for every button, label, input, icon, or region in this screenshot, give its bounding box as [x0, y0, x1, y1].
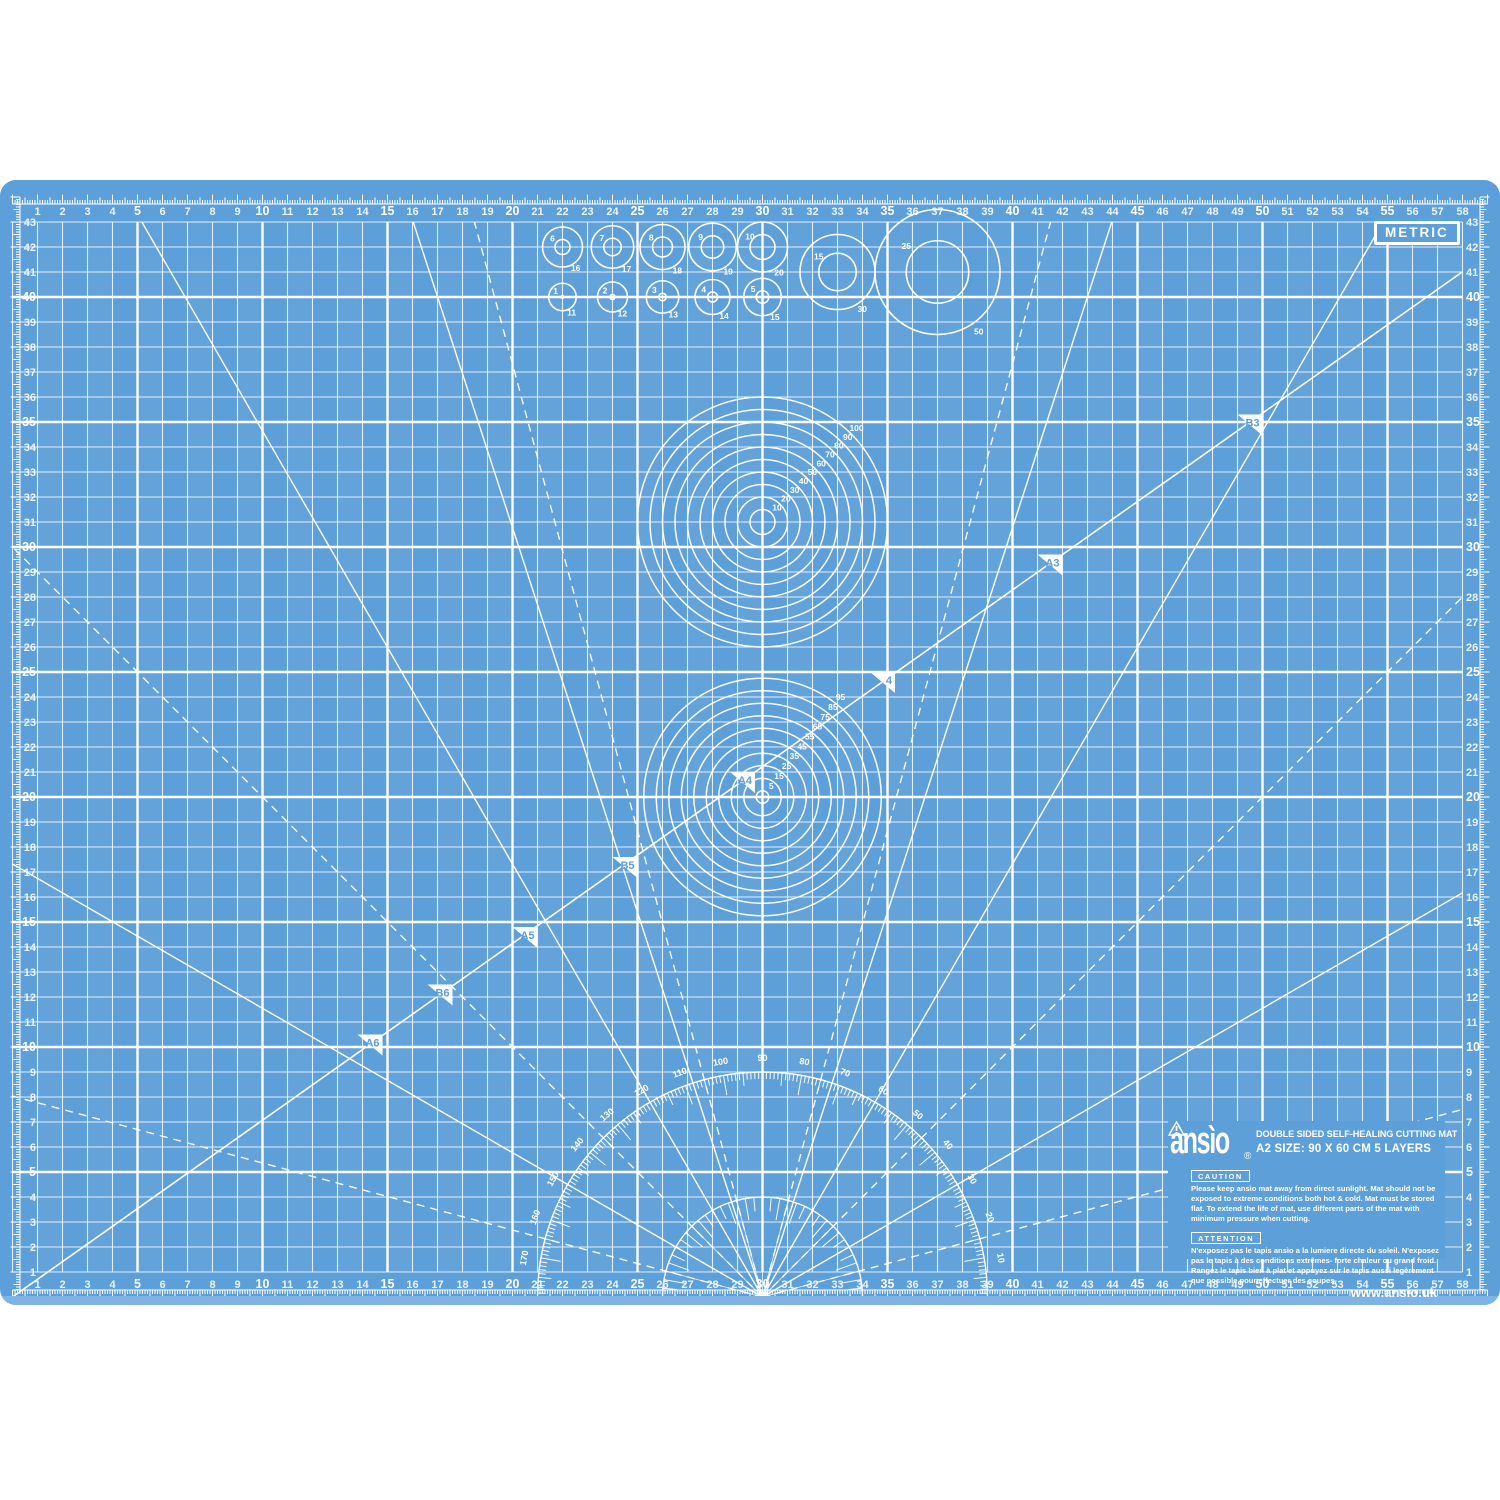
- svg-text:25: 25: [1466, 665, 1480, 679]
- caution-label: CAUTION: [1191, 1170, 1250, 1182]
- svg-text:24: 24: [24, 692, 37, 704]
- svg-text:11: 11: [567, 307, 576, 317]
- svg-text:39: 39: [981, 206, 993, 218]
- svg-text:2: 2: [1466, 1242, 1472, 1254]
- svg-text:A6: A6: [365, 1038, 379, 1050]
- svg-text:23: 23: [581, 206, 593, 218]
- svg-text:6: 6: [1466, 1142, 1472, 1154]
- svg-text:7: 7: [184, 206, 190, 218]
- svg-text:19: 19: [481, 206, 493, 218]
- svg-text:3: 3: [1466, 1217, 1472, 1229]
- svg-text:15: 15: [814, 251, 824, 261]
- svg-text:50: 50: [974, 326, 984, 336]
- svg-text:27: 27: [681, 206, 693, 218]
- svg-text:15: 15: [1466, 915, 1480, 929]
- svg-text:18: 18: [1466, 842, 1478, 854]
- svg-text:11: 11: [282, 206, 294, 218]
- svg-text:17: 17: [431, 1279, 443, 1291]
- svg-text:56: 56: [1406, 206, 1418, 218]
- svg-text:33: 33: [831, 1279, 843, 1291]
- right-mm-ruler: [1480, 197, 1490, 1290]
- brand-row: ansìo ® DOUBLE SIDED SELF-HEALING CUTTIN…: [1170, 1124, 1441, 1162]
- svg-text:39: 39: [1466, 317, 1478, 329]
- svg-text:34: 34: [856, 206, 869, 218]
- svg-text:19: 19: [723, 266, 733, 276]
- svg-text:41: 41: [1031, 1279, 1043, 1291]
- svg-text:30: 30: [858, 304, 868, 314]
- svg-text:6: 6: [550, 234, 555, 244]
- svg-text:110: 110: [671, 1065, 688, 1079]
- svg-text:42: 42: [1466, 242, 1478, 254]
- svg-text:3: 3: [84, 206, 90, 218]
- svg-text:51: 51: [1281, 206, 1293, 218]
- svg-text:31: 31: [1466, 517, 1478, 529]
- svg-text:27: 27: [24, 617, 36, 629]
- svg-text:170: 170: [518, 1250, 530, 1267]
- svg-text:10: 10: [995, 1252, 1007, 1264]
- svg-text:19: 19: [1466, 817, 1478, 829]
- svg-text:12: 12: [618, 309, 628, 319]
- svg-text:36: 36: [24, 392, 36, 404]
- paper-marker-a5: A5: [513, 927, 538, 948]
- svg-text:32: 32: [1466, 492, 1478, 504]
- svg-text:50: 50: [911, 1108, 925, 1122]
- svg-text:28: 28: [1466, 592, 1478, 604]
- svg-text:13: 13: [1466, 967, 1478, 979]
- paper-marker-4: 4: [870, 672, 895, 693]
- svg-text:42: 42: [1056, 206, 1068, 218]
- svg-text:40: 40: [1466, 290, 1480, 304]
- svg-text:16: 16: [24, 892, 36, 904]
- svg-text:18: 18: [24, 842, 36, 854]
- svg-text:35: 35: [1466, 415, 1480, 429]
- svg-text:32: 32: [806, 206, 818, 218]
- svg-text:11: 11: [24, 1017, 36, 1029]
- svg-text:35: 35: [881, 1277, 895, 1291]
- svg-text:6: 6: [159, 1279, 165, 1291]
- website-url: www.ansio.uk: [1191, 1285, 1441, 1300]
- svg-text:19: 19: [24, 817, 36, 829]
- svg-text:42: 42: [1056, 1279, 1068, 1291]
- svg-text:10: 10: [1466, 1040, 1480, 1054]
- caution-text-col: CAUTION Please keep ansìo mat away from …: [1191, 1166, 1441, 1224]
- svg-text:7: 7: [184, 1279, 190, 1291]
- svg-text:11: 11: [1466, 1017, 1478, 1029]
- svg-text:38: 38: [956, 1279, 968, 1291]
- svg-text:18: 18: [456, 206, 468, 218]
- svg-text:16: 16: [406, 1279, 418, 1291]
- svg-text:9: 9: [1466, 1067, 1472, 1079]
- svg-text:100: 100: [849, 423, 863, 433]
- svg-text:42: 42: [24, 242, 36, 254]
- svg-text:35: 35: [22, 415, 36, 429]
- svg-text:41: 41: [1031, 206, 1043, 218]
- svg-text:90: 90: [757, 1053, 767, 1063]
- attention-label: ATTENTION: [1191, 1232, 1261, 1244]
- svg-text:30: 30: [965, 1172, 979, 1186]
- svg-text:30: 30: [1466, 540, 1480, 554]
- svg-text:41: 41: [1466, 267, 1478, 279]
- registered-mark: ®: [1244, 1151, 1251, 1162]
- svg-text:36: 36: [1466, 392, 1478, 404]
- svg-text:32: 32: [24, 492, 36, 504]
- svg-text:54: 54: [1356, 206, 1369, 218]
- product-titles: DOUBLE SIDED SELF-HEALING CUTTING MAT A2…: [1256, 1124, 1441, 1155]
- svg-text:2: 2: [603, 286, 608, 296]
- svg-text:45: 45: [1131, 1277, 1145, 1291]
- svg-text:22: 22: [1466, 742, 1478, 754]
- left-mm-ruler: [11, 197, 21, 1290]
- svg-text:12: 12: [1466, 992, 1478, 1004]
- svg-text:4: 4: [109, 1279, 116, 1291]
- svg-text:13: 13: [331, 1279, 343, 1291]
- product-title: DOUBLE SIDED SELF-HEALING CUTTING MAT: [1256, 1129, 1441, 1139]
- svg-text:15: 15: [381, 204, 395, 218]
- svg-text:39: 39: [24, 317, 36, 329]
- svg-text:29: 29: [1466, 567, 1478, 579]
- svg-text:10: 10: [22, 1040, 36, 1054]
- svg-text:43: 43: [24, 217, 36, 229]
- svg-text:43: 43: [1081, 1279, 1093, 1291]
- svg-text:8: 8: [30, 1092, 36, 1104]
- svg-text:14: 14: [356, 1279, 369, 1291]
- attention-text-col: ATTENTION N'exposez pas le tapis ansìo a…: [1191, 1228, 1441, 1301]
- svg-text:33: 33: [24, 467, 36, 479]
- svg-text:9: 9: [698, 232, 703, 242]
- svg-text:6: 6: [30, 1142, 36, 1154]
- svg-text:1: 1: [1466, 1267, 1472, 1279]
- svg-text:40: 40: [22, 290, 36, 304]
- svg-text:14: 14: [1466, 942, 1479, 954]
- warning-icon-attention: [1170, 1228, 1191, 1301]
- svg-text:25: 25: [631, 204, 645, 218]
- svg-text:17: 17: [622, 264, 632, 274]
- svg-text:34: 34: [24, 442, 37, 454]
- svg-text:5: 5: [134, 204, 141, 218]
- svg-text:18: 18: [673, 265, 683, 275]
- svg-text:46: 46: [1156, 206, 1168, 218]
- svg-text:A3: A3: [1045, 558, 1059, 570]
- svg-text:20: 20: [1466, 790, 1480, 804]
- svg-text:8: 8: [209, 1279, 215, 1291]
- svg-text:34: 34: [856, 1279, 869, 1291]
- svg-text:29: 29: [731, 206, 743, 218]
- svg-text:37: 37: [1466, 367, 1478, 379]
- svg-text:24: 24: [606, 1279, 619, 1291]
- svg-text:55: 55: [1381, 204, 1395, 218]
- svg-text:17: 17: [431, 206, 443, 218]
- svg-text:2: 2: [59, 1279, 65, 1291]
- product-size: A2 SIZE: 90 X 60 CM 5 LAYERS: [1256, 1143, 1441, 1155]
- svg-text:23: 23: [1466, 717, 1478, 729]
- svg-text:41: 41: [24, 267, 36, 279]
- svg-text:52: 52: [1306, 206, 1318, 218]
- svg-text:25: 25: [902, 241, 912, 251]
- svg-text:30: 30: [756, 204, 770, 218]
- svg-text:16: 16: [406, 206, 418, 218]
- svg-text:21: 21: [1466, 767, 1478, 779]
- svg-text:38: 38: [1466, 342, 1478, 354]
- svg-text:49: 49: [1231, 206, 1243, 218]
- svg-text:3: 3: [84, 1279, 90, 1291]
- svg-text:28: 28: [706, 206, 718, 218]
- svg-text:28: 28: [24, 592, 36, 604]
- svg-text:25: 25: [631, 1277, 645, 1291]
- svg-text:11: 11: [282, 1279, 294, 1291]
- svg-text:2: 2: [59, 206, 65, 218]
- svg-text:37: 37: [931, 206, 943, 218]
- svg-text:31: 31: [781, 206, 793, 218]
- svg-text:25: 25: [22, 665, 36, 679]
- svg-text:5: 5: [751, 284, 756, 294]
- svg-text:1: 1: [30, 1267, 36, 1279]
- svg-text:5: 5: [29, 1165, 36, 1179]
- svg-text:20: 20: [506, 1277, 520, 1291]
- svg-text:12: 12: [24, 992, 36, 1004]
- svg-text:50: 50: [1256, 204, 1270, 218]
- svg-text:21: 21: [24, 767, 36, 779]
- svg-text:20: 20: [506, 204, 520, 218]
- svg-text:38: 38: [24, 342, 36, 354]
- svg-text:A5: A5: [520, 930, 534, 942]
- svg-text:8: 8: [1466, 1092, 1472, 1104]
- svg-text:10: 10: [256, 1277, 270, 1291]
- warning-triangle-icon: [1168, 1121, 1185, 1136]
- svg-text:100: 100: [712, 1055, 729, 1067]
- svg-text:2: 2: [30, 1242, 36, 1254]
- svg-text:10: 10: [745, 232, 755, 242]
- svg-text:26: 26: [1466, 642, 1478, 654]
- svg-text:22: 22: [556, 206, 568, 218]
- product-image-canvas: { "mat": { "badge": "METRIC", "colors": …: [0, 0, 1500, 1500]
- caution-text: Please keep ansìo mat away from direct s…: [1191, 1184, 1441, 1223]
- svg-text:22: 22: [556, 1279, 568, 1291]
- svg-text:5: 5: [134, 1277, 141, 1291]
- svg-text:15: 15: [381, 1277, 395, 1291]
- svg-text:16: 16: [571, 263, 581, 273]
- svg-text:35: 35: [881, 204, 895, 218]
- svg-text:13: 13: [668, 310, 678, 320]
- svg-text:9: 9: [234, 1279, 240, 1291]
- svg-text:40: 40: [1006, 204, 1020, 218]
- svg-text:B6: B6: [435, 988, 449, 1000]
- svg-text:12: 12: [306, 206, 318, 218]
- svg-text:8: 8: [209, 206, 215, 218]
- svg-text:40: 40: [1006, 1277, 1020, 1291]
- svg-text:14: 14: [356, 206, 369, 218]
- svg-text:9: 9: [30, 1067, 36, 1079]
- svg-text:33: 33: [1466, 467, 1478, 479]
- info-block: ansìo ® DOUBLE SIDED SELF-HEALING CUTTIN…: [1168, 1121, 1445, 1259]
- svg-text:16: 16: [1466, 892, 1478, 904]
- svg-text:23: 23: [24, 717, 36, 729]
- svg-text:4: 4: [109, 206, 116, 218]
- svg-text:33: 33: [831, 206, 843, 218]
- svg-text:8: 8: [649, 233, 654, 243]
- svg-text:14: 14: [24, 942, 37, 954]
- svg-text:B5: B5: [620, 860, 634, 872]
- svg-text:45: 45: [1131, 204, 1145, 218]
- svg-text:1: 1: [553, 286, 558, 296]
- svg-text:4: 4: [701, 285, 706, 295]
- svg-text:57: 57: [1431, 206, 1443, 218]
- svg-text:80: 80: [799, 1056, 811, 1068]
- svg-text:24: 24: [606, 206, 619, 218]
- svg-text:53: 53: [1331, 206, 1343, 218]
- svg-text:13: 13: [331, 206, 343, 218]
- svg-text:37: 37: [24, 367, 36, 379]
- svg-text:48: 48: [1206, 206, 1218, 218]
- svg-text:23: 23: [581, 1279, 593, 1291]
- svg-text:12: 12: [306, 1279, 318, 1291]
- svg-text:7: 7: [1466, 1117, 1472, 1129]
- svg-text:30: 30: [22, 540, 36, 554]
- svg-text:6: 6: [159, 206, 165, 218]
- svg-text:44: 44: [1106, 206, 1119, 218]
- svg-text:43: 43: [1466, 217, 1478, 229]
- svg-text:B3: B3: [1245, 418, 1259, 430]
- svg-text:5: 5: [1466, 1165, 1473, 1179]
- svg-text:3: 3: [30, 1217, 36, 1229]
- svg-text:26: 26: [656, 206, 668, 218]
- svg-text:4: 4: [886, 675, 893, 687]
- caution-notice: CAUTION Please keep ansìo mat away from …: [1170, 1166, 1441, 1224]
- svg-text:13: 13: [24, 967, 36, 979]
- svg-text:17: 17: [1466, 867, 1478, 879]
- warning-icon-caution: [1170, 1166, 1191, 1224]
- svg-text:9: 9: [234, 206, 240, 218]
- svg-text:4: 4: [1466, 1192, 1473, 1204]
- svg-text:140: 140: [568, 1135, 585, 1153]
- svg-text:14: 14: [719, 311, 729, 321]
- top-mm-ruler: [13, 195, 1488, 205]
- svg-text:7: 7: [30, 1117, 36, 1129]
- svg-text:95: 95: [836, 692, 846, 702]
- svg-text:3: 3: [652, 285, 657, 295]
- svg-text:24: 24: [1466, 692, 1479, 704]
- svg-text:43: 43: [1081, 206, 1093, 218]
- svg-text:22: 22: [24, 742, 36, 754]
- svg-text:31: 31: [24, 517, 36, 529]
- svg-text:37: 37: [931, 1279, 943, 1291]
- svg-text:58: 58: [1456, 1279, 1468, 1291]
- metric-badge: METRIC: [1374, 221, 1460, 245]
- svg-text:36: 36: [906, 1279, 918, 1291]
- svg-text:46: 46: [1156, 1279, 1168, 1291]
- svg-text:34: 34: [1466, 442, 1479, 454]
- svg-text:44: 44: [1106, 1279, 1119, 1291]
- cutting-mat: 1122334455667788991010111112121313141415…: [0, 180, 1500, 1305]
- svg-text:20: 20: [774, 268, 784, 278]
- svg-text:4: 4: [30, 1192, 37, 1204]
- svg-text:27: 27: [1466, 617, 1478, 629]
- svg-text:27: 27: [681, 1279, 693, 1291]
- svg-text:10: 10: [256, 204, 270, 218]
- svg-text:20: 20: [22, 790, 36, 804]
- svg-text:19: 19: [481, 1279, 493, 1291]
- svg-text:18: 18: [456, 1279, 468, 1291]
- svg-text:A4: A4: [738, 775, 753, 787]
- svg-text:21: 21: [531, 206, 543, 218]
- svg-text:15: 15: [770, 312, 780, 322]
- svg-text:7: 7: [600, 233, 605, 243]
- svg-text:47: 47: [1181, 206, 1193, 218]
- svg-text:15: 15: [22, 915, 36, 929]
- svg-text:26: 26: [24, 642, 36, 654]
- attention-text: N'exposez pas le tapis ansìo a la lumier…: [1191, 1246, 1441, 1285]
- attention-notice: ATTENTION N'exposez pas le tapis ansìo a…: [1170, 1228, 1441, 1301]
